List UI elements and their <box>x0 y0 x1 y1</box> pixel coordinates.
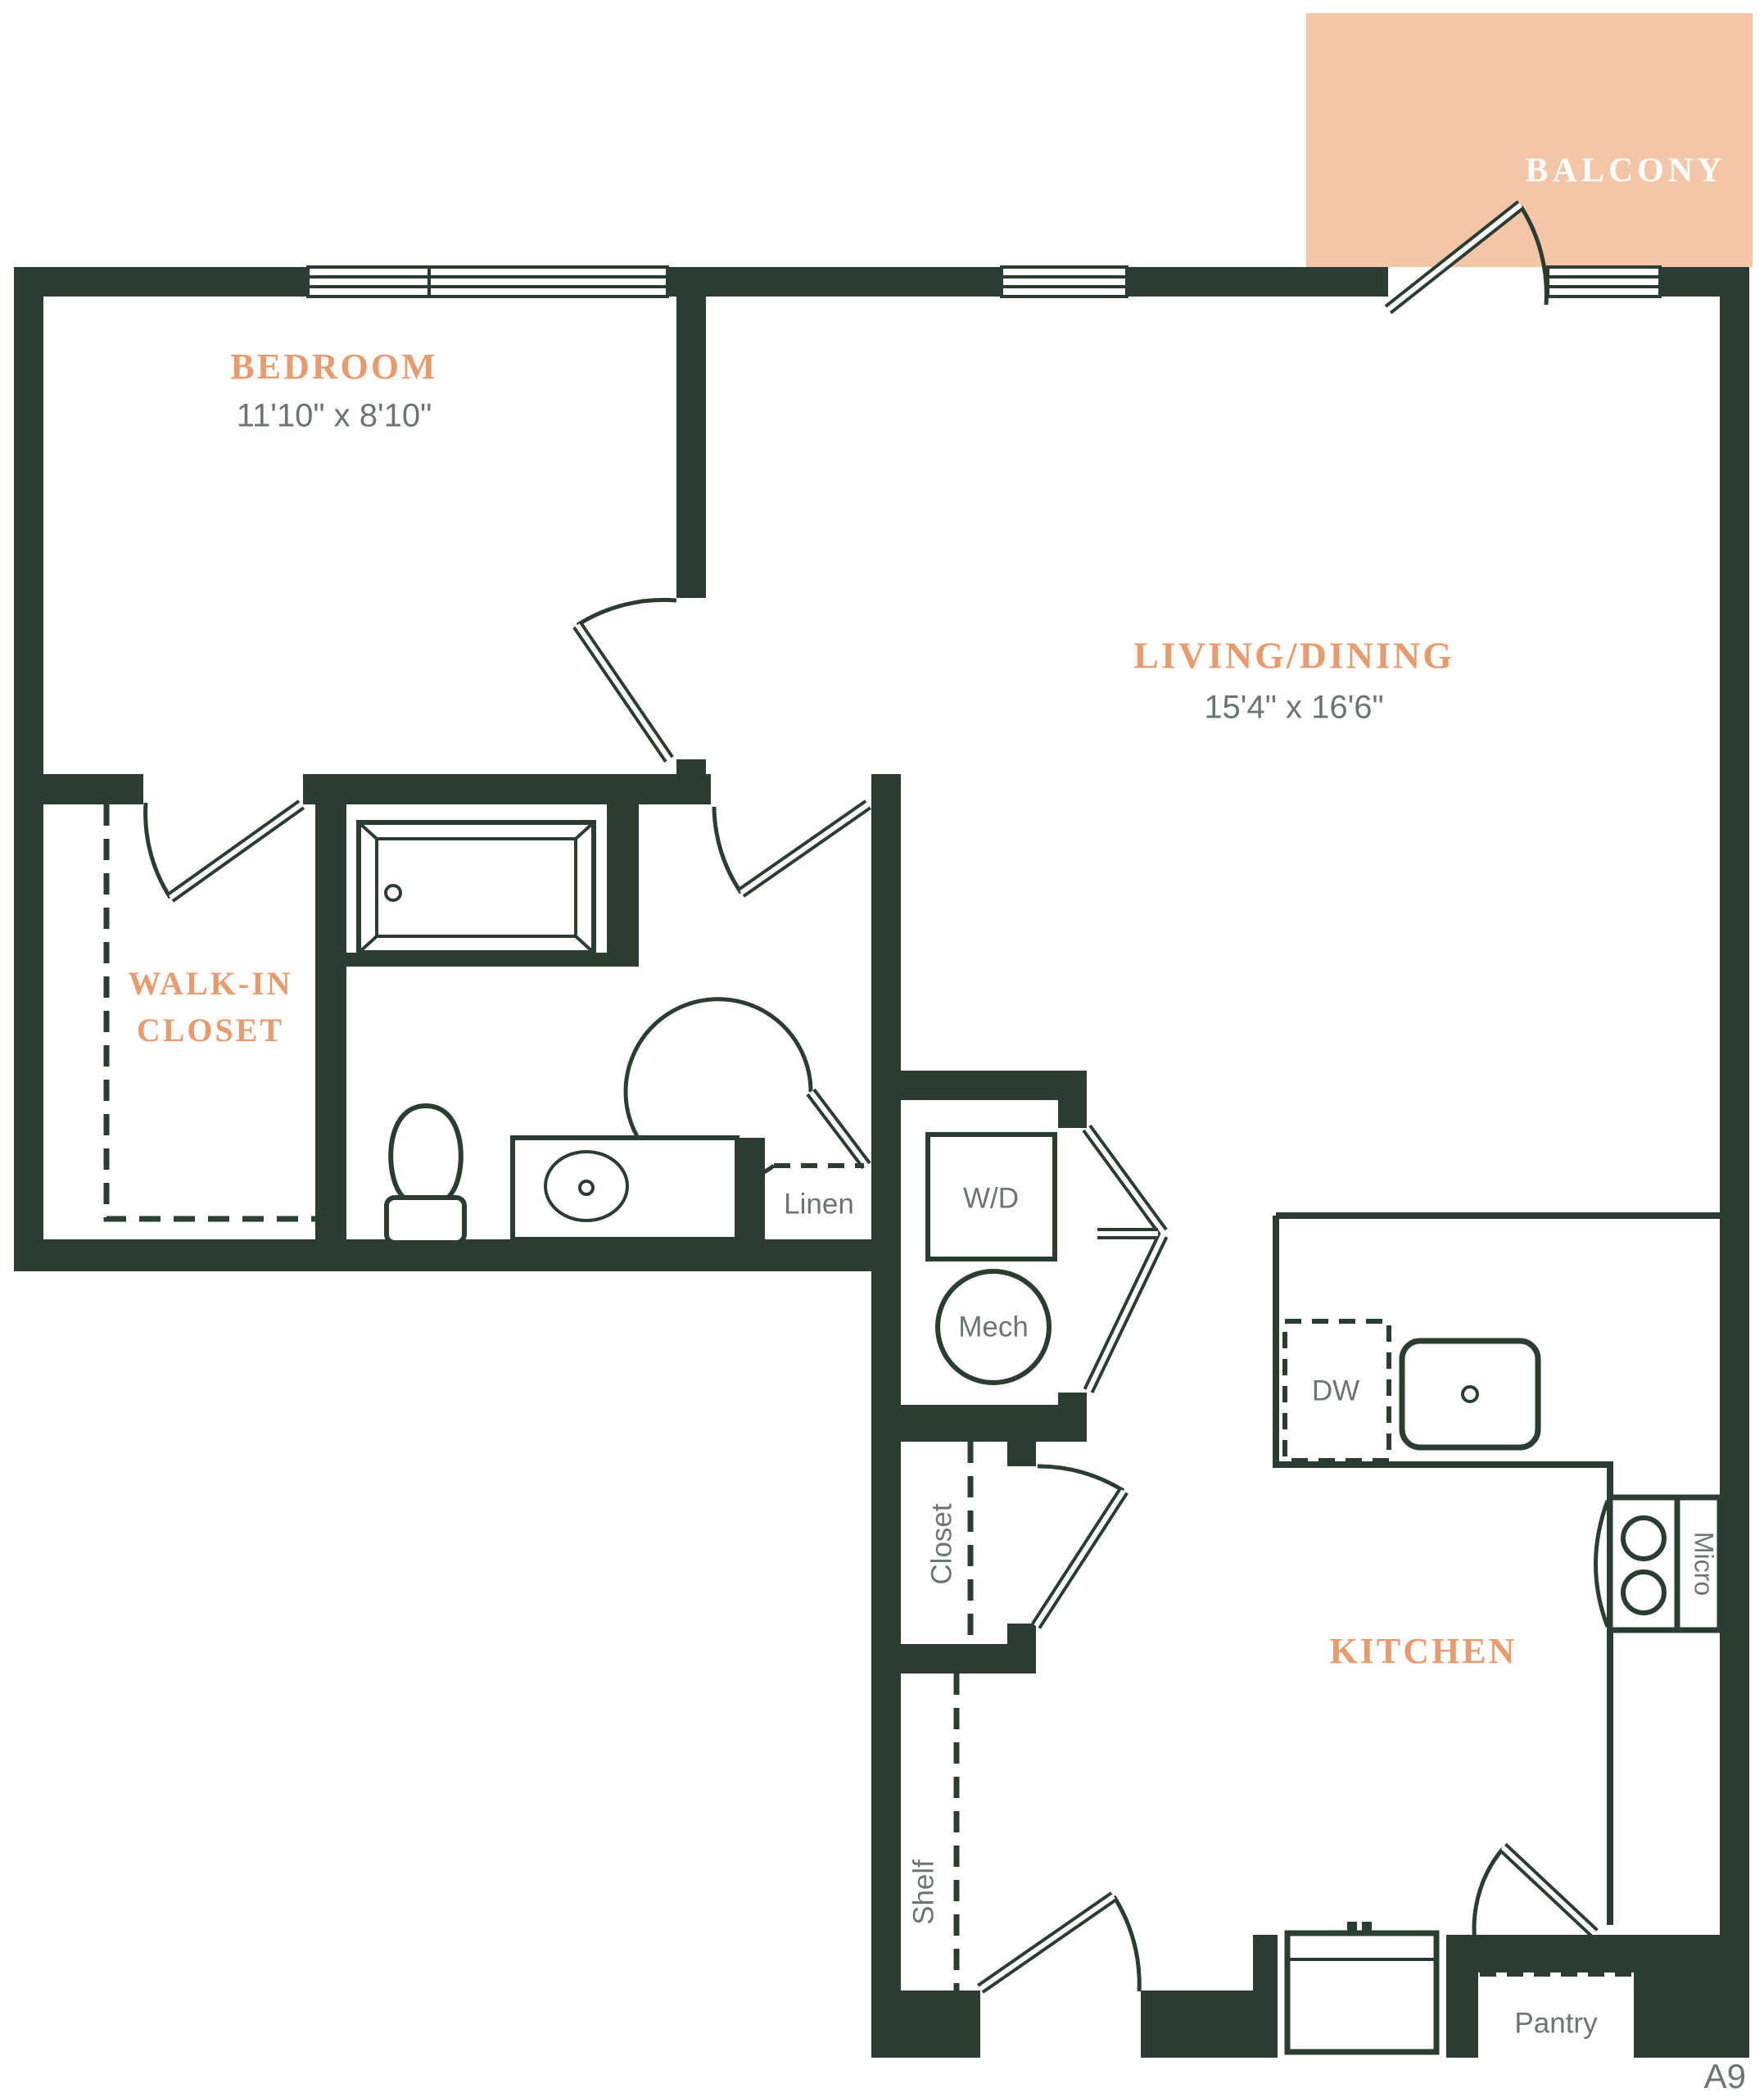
wall-bedroom-bottom <box>303 774 711 804</box>
bedroom-door-arc <box>577 600 676 625</box>
bathtub-fixture <box>359 822 594 953</box>
wd-bifold-leaf-bottom <box>1088 1235 1163 1391</box>
hall-closet-door <box>1036 1466 1124 1626</box>
toilet-fixture <box>387 1106 464 1243</box>
wall-closet-right-stub-bottom <box>1007 1624 1036 1644</box>
entry-door-arc <box>1114 1896 1139 1991</box>
wall-tub-right <box>607 804 639 967</box>
linen-door-leaf <box>811 1092 866 1166</box>
pantry-door-leaf <box>1503 1847 1594 1933</box>
wall-bedroom-door-stub <box>676 759 706 804</box>
bathroom-door-leaf <box>741 804 868 893</box>
walls <box>14 267 1749 2058</box>
bedroom-door-leaf <box>577 625 669 759</box>
hall-closet-door-arc <box>1038 1466 1124 1491</box>
wall-closet-right-stub-top <box>1007 1442 1036 1466</box>
wall-wd-right-stub-top <box>1058 1100 1087 1128</box>
balcony-label: BALCONY <box>1525 152 1726 190</box>
walk-in-closet-door <box>146 803 301 898</box>
walk-in-closet-door-leaf <box>170 804 301 898</box>
oven-door-arc <box>1596 1501 1608 1627</box>
balcony-window <box>1548 267 1660 297</box>
wall-wd-top <box>901 1071 1087 1100</box>
balcony-area: BALCONY <box>1306 13 1753 267</box>
living-window <box>1002 267 1127 297</box>
bedroom-door <box>577 600 676 759</box>
hall-closet-door-leaf <box>1036 1491 1124 1626</box>
wall-closet-bottom <box>901 1644 1036 1674</box>
fridge-fixture <box>1287 1922 1436 2052</box>
kitchen-sink-fixture <box>1402 1341 1538 1447</box>
fridge-handle-left <box>1347 1922 1357 1935</box>
shelf-label: Shelf <box>907 1859 939 1925</box>
vanity-fixture <box>513 1138 737 1239</box>
fridge-handle-right <box>1362 1922 1372 1935</box>
mech-label: Mech <box>958 1311 1029 1343</box>
wall-right-exterior <box>1720 297 1749 2058</box>
balcony-floor <box>1306 13 1753 267</box>
toilet-tank <box>387 1198 464 1243</box>
wall-closet-top-left <box>43 774 143 804</box>
wall-hall-west <box>871 774 901 2058</box>
living-dining-label: LIVING/DINING <box>1133 635 1454 677</box>
bedroom-window <box>308 267 667 297</box>
walk-in-closet-door-arc <box>146 803 170 898</box>
wd-bifold-doors <box>1087 1128 1163 1391</box>
wall-closet-bath-divider <box>315 804 346 1239</box>
bedroom-label: BEDROOM <box>230 346 437 387</box>
wd-bifold-leaf-top <box>1087 1128 1163 1232</box>
toilet-bowl <box>391 1106 461 1206</box>
bathroom-door-arc <box>714 807 741 893</box>
linen-label: Linen <box>784 1188 854 1220</box>
entry-door <box>980 1896 1139 1991</box>
dishwasher-label: DW <box>1312 1375 1359 1406</box>
living-dining-dimensions: 15'4" x 16'6" <box>1204 690 1383 726</box>
entry-door-leaf <box>980 1896 1114 1989</box>
walk-in-closet-label-line2: CLOSET <box>137 1012 284 1048</box>
wall-wd-bottom <box>901 1405 1087 1442</box>
bedroom-dimensions: 11'10" x 8'10" <box>237 398 432 434</box>
floor-plan-a9: BALCONY <box>0 0 1764 2097</box>
kitchen-label: KITCHEN <box>1330 1631 1517 1671</box>
wall-bottom-west <box>875 1991 980 2058</box>
washer-dryer-label: W/D <box>963 1182 1019 1214</box>
wall-bedroom-living-divider <box>676 297 706 598</box>
unit-label: A9 <box>1704 2057 1746 2095</box>
microwave-label: Micro <box>1689 1532 1719 1596</box>
wall-vanity-linen <box>737 1138 765 1239</box>
pantry-label: Pantry <box>1514 2007 1598 2039</box>
wall-left-exterior <box>14 267 43 1271</box>
bathroom-door <box>714 804 868 893</box>
floor-plan-page: BALCONY <box>0 0 1764 2097</box>
hall-closet-label: Closet <box>925 1503 957 1584</box>
walk-in-closet-label-line1: WALK-IN <box>128 965 292 1002</box>
